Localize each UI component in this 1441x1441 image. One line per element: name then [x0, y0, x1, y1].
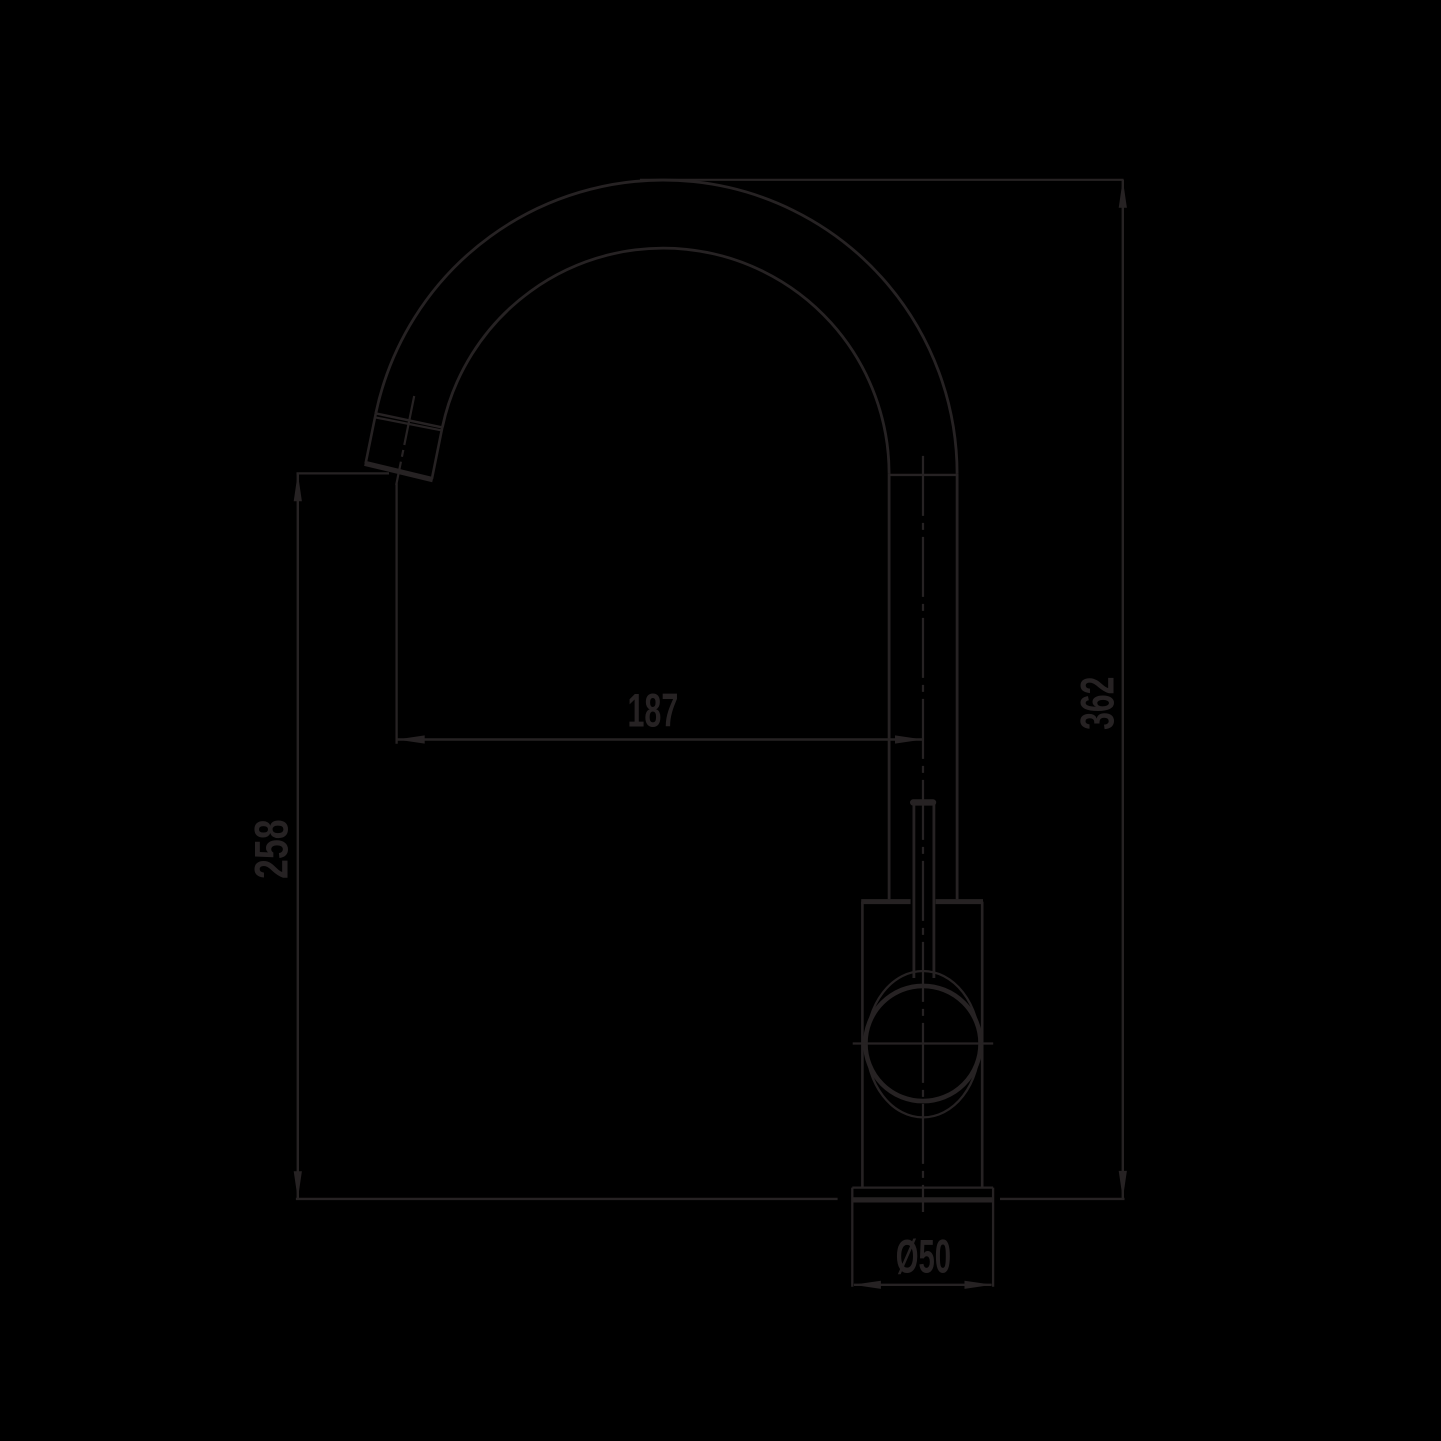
svg-text:Ø50: Ø50 [896, 1229, 951, 1282]
svg-text:187: 187 [628, 684, 679, 737]
svg-text:362: 362 [1070, 677, 1123, 730]
svg-text:258: 258 [245, 819, 298, 879]
